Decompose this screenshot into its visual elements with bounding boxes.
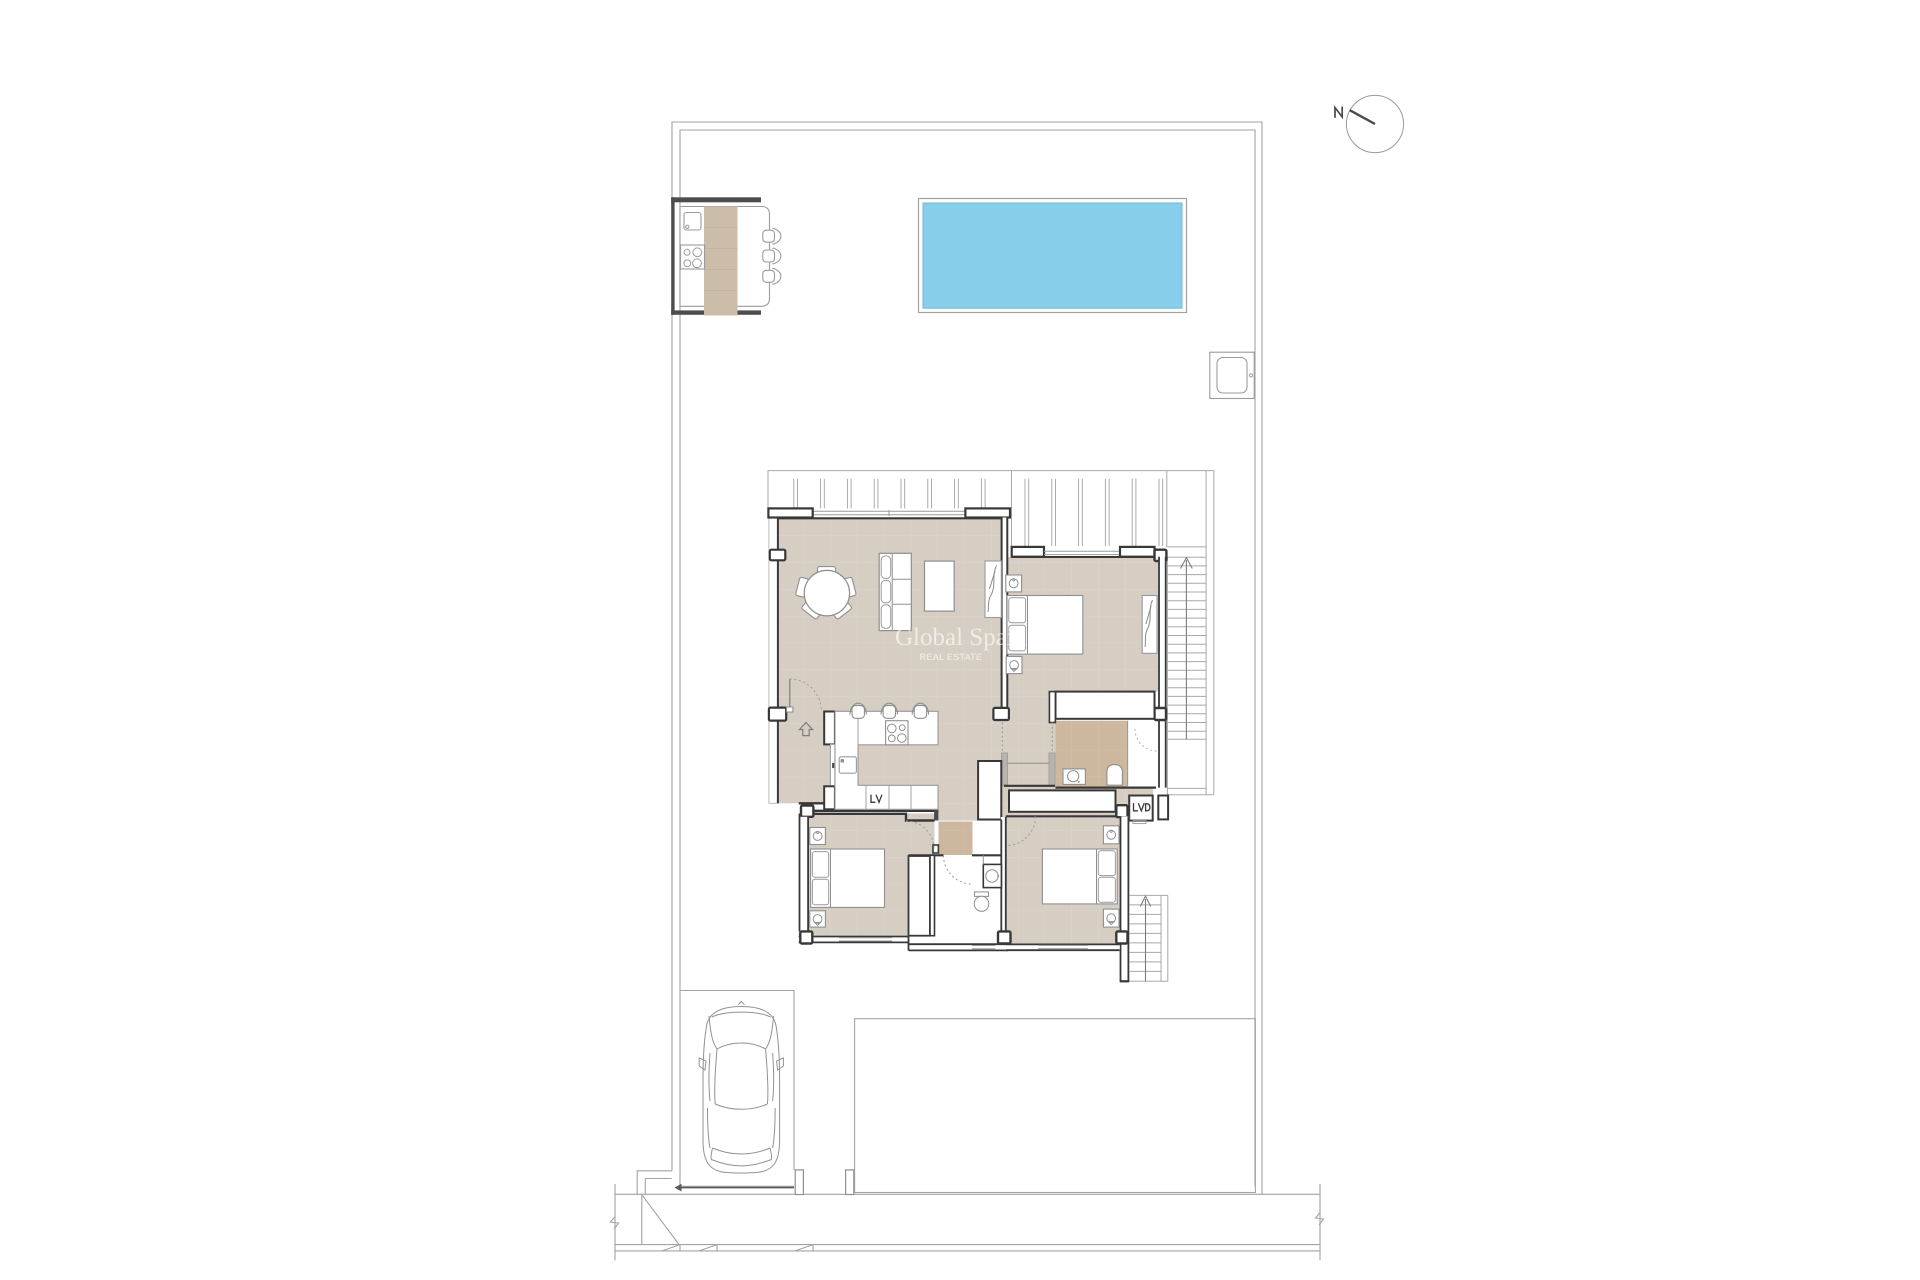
svg-text:Global Spain: Global Spain [895, 624, 1027, 651]
svg-text:REAL ESTATE: REAL ESTATE [920, 652, 983, 662]
